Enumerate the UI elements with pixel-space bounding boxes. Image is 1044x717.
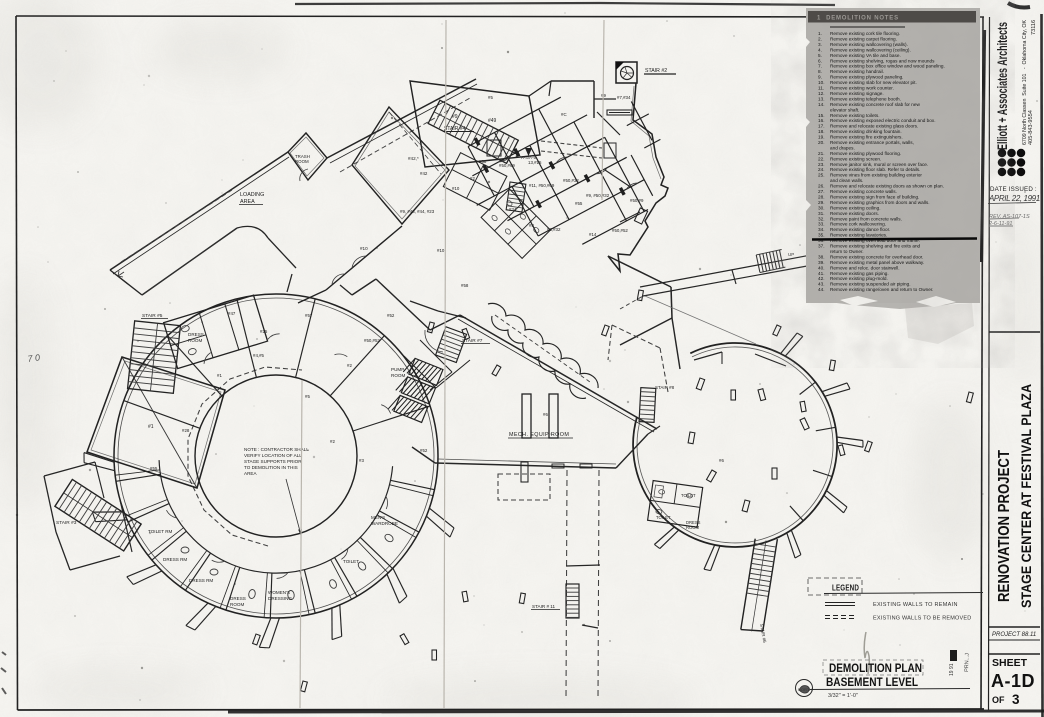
svg-text:Remove existing cork tile floo: Remove existing cork tile flooring.	[830, 31, 900, 36]
svg-text:40.: 40.	[818, 265, 825, 270]
svg-text:3/32" = 1'-0": 3/32" = 1'-0"	[828, 693, 858, 699]
svg-text:#38: #38	[479, 159, 487, 164]
svg-text:21.: 21.	[818, 151, 825, 156]
svg-text:#2: #2	[347, 363, 352, 368]
svg-text:34.: 34.	[818, 227, 825, 232]
svg-text:DRESS RM: DRESS RM	[163, 557, 187, 562]
svg-text:Remove paint from concrete wal: Remove paint from concrete walls.	[830, 216, 902, 221]
svg-text:Remove existing carpet floorin: Remove existing carpet flooring.	[830, 37, 897, 42]
svg-text:Remove existing handrail.: Remove existing handrail.	[830, 69, 884, 74]
svg-text:Remove existing graphics from: Remove existing graphics from doors and …	[830, 200, 930, 205]
svg-text:TOILET: TOILET	[656, 515, 671, 520]
svg-text:TOILET: TOILET	[681, 493, 696, 498]
svg-text:APRIL 22, 1991: APRIL 22, 1991	[988, 194, 1040, 203]
svg-text:#5: #5	[305, 394, 310, 399]
svg-text:#55: #55	[150, 466, 158, 471]
svg-text:NOTE : CONTRACTOR SHALL: NOTE : CONTRACTOR SHALL	[244, 447, 309, 452]
svg-text:PROJECT 88.11: PROJECT 88.11	[992, 632, 1036, 638]
svg-text:32.: 32.	[818, 216, 825, 221]
svg-text:1.: 1.	[818, 31, 822, 36]
svg-text:43.: 43.	[818, 282, 825, 287]
svg-text:DATE ISSUED :: DATE ISSUED :	[990, 186, 1037, 193]
svg-text:18.: 18.	[818, 129, 825, 134]
svg-text:Elliott + Associates Architect: Elliott + Associates Architects	[995, 22, 1010, 150]
svg-text:Remove existing range/oven and: Remove existing range/oven and return to…	[830, 287, 933, 292]
svg-text:38.: 38.	[818, 254, 825, 259]
svg-text:Remove existing dance floor.: Remove existing dance floor.	[830, 227, 890, 232]
svg-text:33.: 33.	[818, 222, 825, 227]
svg-text:Remove existing concrete for o: Remove existing concrete for overhead do…	[830, 254, 923, 259]
svg-text:Remove existing doors.: Remove existing doors.	[830, 211, 879, 216]
svg-text:13.: 13.	[818, 96, 825, 101]
svg-text:Remove cork wallcovering.: Remove cork wallcovering.	[830, 222, 886, 227]
svg-text:Remove existing slab for new e: Remove existing slab for new elevator pi…	[830, 80, 917, 85]
svg-text:and clean walls.: and clean walls.	[830, 178, 863, 183]
svg-text:20.: 20.	[818, 140, 825, 145]
svg-text:DEMOLITION PLAN: DEMOLITION PLAN	[829, 663, 922, 675]
svg-text:REV. AS-107-1S: REV. AS-107-1S	[989, 214, 1030, 220]
svg-text:#2: #2	[330, 439, 335, 444]
svg-text:AREA: AREA	[244, 471, 257, 476]
svg-text:OF: OF	[992, 695, 1005, 705]
svg-text:Remove existing gas piping.: Remove existing gas piping.	[830, 271, 889, 276]
svg-text:2-6-11-91: 2-6-11-91	[988, 221, 1012, 227]
svg-text:7 0: 7 0	[27, 352, 41, 364]
svg-text:TOILET RM: TOILET RM	[148, 529, 173, 534]
svg-text:2.: 2.	[818, 37, 822, 42]
svg-text:#58: #58	[461, 283, 469, 288]
svg-text:Remove existing screen.: Remove existing screen.	[830, 156, 881, 161]
svg-text:Remove existing floor slab. R: Remove existing floor slab. Refer to det…	[830, 167, 920, 172]
svg-text:MECH. EQUIP ROOM: MECH. EQUIP ROOM	[509, 432, 569, 438]
svg-text:Remove existing ceiling.: Remove existing ceiling.	[830, 205, 881, 210]
svg-text:30.: 30.	[818, 205, 825, 210]
svg-text:11.: 11.	[818, 86, 824, 91]
svg-text:#3: #3	[359, 458, 364, 463]
svg-text:#10: #10	[360, 246, 368, 251]
svg-text:WARDROBE: WARDROBE	[371, 521, 398, 526]
svg-text:#52: #52	[420, 448, 428, 453]
svg-text:31.: 31.	[818, 211, 825, 216]
svg-text:Remove vines from existing bui: Remove vines from existing building exte…	[830, 173, 922, 178]
svg-text:1 DEMOLITION NOTES: 1 DEMOLITION NOTES	[817, 16, 899, 22]
svg-text:SHEET: SHEET	[992, 657, 1028, 669]
svg-text:#10: #10	[452, 186, 460, 191]
svg-text:35.: 35.	[818, 233, 825, 238]
svg-text:#50,#52: #50,#52	[364, 338, 380, 343]
svg-text:Remove existing concrete walls: Remove existing concrete walls.	[830, 189, 897, 194]
svg-text:Remove janitor sink, mural or: Remove janitor sink, mural or screen ove…	[830, 162, 928, 167]
svg-text:39.: 39.	[818, 260, 825, 265]
svg-text:UP: UP	[788, 252, 794, 257]
svg-text:ROOM: ROOM	[295, 159, 309, 164]
svg-text:14.: 14.	[818, 102, 825, 107]
svg-text:#6: #6	[719, 458, 724, 463]
svg-text:4.: 4.	[818, 47, 822, 52]
svg-text:12.: 12.	[818, 91, 825, 96]
svg-text:MEN'S: MEN'S	[371, 515, 385, 520]
svg-text:return to Owner.: return to Owner.	[830, 249, 864, 254]
svg-text:EXISTING WALLS TO BE REMOVED: EXISTING WALLS TO BE REMOVED	[873, 616, 971, 622]
svg-text:#9, #43, #44, #23: #9, #43, #44, #23	[400, 209, 435, 214]
svg-text:STAIR #2: STAIR #2	[645, 68, 667, 74]
svg-text:19.: 19.	[818, 135, 825, 140]
svg-text:DRESS RM: DRESS RM	[189, 578, 213, 583]
svg-text:9.: 9.	[818, 75, 822, 80]
svg-text:#5: #5	[488, 95, 493, 100]
svg-text:5.: 5.	[818, 53, 822, 58]
svg-text:8.: 8.	[818, 69, 822, 74]
svg-text:#C: #C	[561, 112, 567, 117]
svg-text:VERIFY LOCATION OF ALL: VERIFY LOCATION OF ALL	[244, 453, 302, 458]
svg-text:STAIR #8: STAIR #8	[655, 385, 675, 390]
svg-text:Remove existing work counter.: Remove existing work counter.	[830, 86, 894, 91]
svg-text:Remove and reloc. door stairwe: Remove and reloc. door stairwell.	[830, 265, 900, 270]
svg-text:PUMP: PUMP	[391, 367, 404, 372]
svg-text:ROOM: ROOM	[188, 338, 202, 343]
svg-text:22.: 22.	[818, 156, 825, 161]
svg-text:#4,#5: #4,#5	[253, 353, 265, 358]
svg-text:16.: 16.	[818, 118, 825, 123]
svg-text:23.: 23.	[818, 162, 825, 167]
svg-text:Remove existing plywood floori: Remove existing plywood flooring.	[830, 151, 901, 156]
svg-text:STAGE CENTER AT FESTIVAL PLAZA: STAGE CENTER AT FESTIVAL PLAZA	[1018, 384, 1034, 608]
svg-text:6.: 6.	[818, 58, 822, 63]
svg-text:26.: 26.	[818, 184, 825, 189]
svg-text:ROOM: ROOM	[391, 373, 405, 378]
svg-text:Remove existing shelving and f: Remove existing shelving and fire exits …	[830, 244, 921, 249]
svg-text:#10: #10	[437, 248, 445, 253]
svg-text:ROOM: ROOM	[686, 525, 700, 530]
svg-text:TOILET: TOILET	[343, 559, 359, 564]
svg-text:Remove existing plug-mold.: Remove existing plug-mold.	[830, 276, 888, 281]
svg-text:#57: #57	[305, 313, 313, 318]
svg-text:Remove existing concrete roof: Remove existing concrete roof slab for n…	[830, 102, 921, 107]
svg-text:Remove existing metal panel ab: Remove existing metal panel above walkwa…	[830, 260, 924, 265]
svg-text:41.: 41.	[818, 271, 825, 276]
svg-text:Remove existing signage.: Remove existing signage.	[830, 91, 884, 96]
svg-text:Remove existing wallcovering (: Remove existing wallcovering (walls).	[830, 42, 908, 47]
svg-text:73116: 73116	[1031, 20, 1037, 35]
svg-text:42.: 42.	[818, 276, 825, 281]
svg-text:BASEMENT LEVEL: BASEMENT LEVEL	[826, 677, 918, 689]
svg-text:LEGEND: LEGEND	[832, 584, 859, 593]
svg-text:Remove existing telephone boot: Remove existing telephone booth.	[830, 96, 901, 101]
svg-text:#28: #28	[182, 428, 190, 433]
svg-text:17.: 17.	[818, 124, 825, 129]
svg-text:#55: #55	[575, 201, 583, 206]
svg-text:PRN...J: PRN...J	[964, 653, 971, 672]
svg-text:27.: 27.	[818, 189, 825, 194]
svg-text:#7,#34: #7,#34	[617, 95, 631, 100]
svg-text:#49: #49	[488, 118, 497, 124]
svg-text:TO DEMOLITION IN THIS: TO DEMOLITION IN THIS	[244, 465, 298, 470]
svg-text:#52: #52	[387, 313, 395, 318]
svg-text:Remove existing exposed electr: Remove existing exposed electric conduit…	[830, 118, 936, 123]
svg-text:#2: #2	[470, 176, 475, 181]
svg-text:STAGE SUPPORTS PRIOR: STAGE SUPPORTS PRIOR	[244, 459, 302, 464]
svg-text:DRESS: DRESS	[230, 596, 246, 601]
svg-text:Remove existing fire extinguis: Remove existing fire extinguishers.	[830, 135, 903, 140]
svg-text:#6: #6	[543, 412, 548, 417]
svg-text:Remove existing entrance porta: Remove existing entrance portals, walls,	[830, 140, 914, 145]
svg-text:Remove existing toilets.: Remove existing toilets.	[830, 113, 880, 118]
svg-text:Remove existing drinking fount: Remove existing drinking fountain.	[830, 129, 902, 134]
svg-text:elevator shaft.: elevator shaft.	[830, 107, 859, 112]
svg-text:10.: 10.	[818, 80, 825, 85]
svg-text:37.: 37.	[818, 244, 825, 249]
svg-text:#42: #42	[420, 171, 428, 176]
svg-text:Remove existing suspended air: Remove existing suspended air piping.	[830, 282, 911, 287]
svg-text:#34: #34	[509, 207, 517, 212]
svg-text:3.: 3.	[818, 42, 822, 47]
svg-text:A-1D: A-1D	[991, 671, 1035, 691]
svg-text:7.: 7.	[818, 64, 822, 69]
svg-text:WOMEN'S: WOMEN'S	[268, 590, 290, 595]
svg-text:Remove existing wallcovering (: Remove existing wallcovering (ceiling).	[830, 47, 911, 52]
svg-text:3: 3	[1012, 692, 1020, 707]
svg-text:and drapes.: and drapes.	[830, 146, 855, 151]
svg-text:#42,*: #42,*	[408, 156, 419, 161]
svg-text:Remove existing lavatories.: Remove existing lavatories.	[830, 233, 887, 238]
svg-text:Remove existing shelving, roga: Remove existing shelving, rogas and now …	[830, 58, 935, 63]
svg-text:15.: 15.	[818, 113, 825, 118]
svg-text:Remove and relocate existing g: Remove and relocate existing glass doors…	[830, 124, 918, 129]
svg-text:Remove and relocate existing d: Remove and relocate existing doors as sh…	[830, 184, 944, 189]
svg-text:#25: #25	[260, 329, 268, 334]
svg-text:#47: #47	[228, 311, 236, 316]
svg-text:STAIR # 11: STAIR # 11	[532, 604, 556, 609]
svg-text:19 91: 19 91	[949, 663, 955, 676]
svg-text:Remove existing box office win: Remove existing box office window and wo…	[830, 64, 945, 69]
svg-text:#1: #1	[148, 424, 154, 430]
svg-text:EXISTING WALLS TO REMAIN: EXISTING WALLS TO REMAIN	[873, 602, 958, 608]
svg-text:44.: 44.	[818, 287, 825, 292]
svg-text:Remove existing VA tile and ba: Remove existing VA tile and base.	[830, 53, 901, 58]
svg-text:NORTH: NORTH	[798, 687, 812, 692]
svg-text:Remove existing sign from face: Remove existing sign from face of buildi…	[830, 195, 919, 200]
svg-text:STAIR #3: STAIR #3	[56, 520, 77, 526]
svg-text:DRESSING: DRESSING	[268, 596, 292, 601]
svg-text:28.: 28.	[818, 195, 825, 200]
svg-text:405-843-9554: 405-843-9554	[1028, 110, 1034, 145]
svg-text:25.: 25.	[818, 173, 825, 178]
svg-text:#9: #9	[452, 114, 458, 120]
svg-text:Remove existing plywood paneli: Remove existing plywood paneling.	[830, 75, 903, 80]
svg-text:24.: 24.	[818, 167, 825, 172]
svg-text:ROOM: ROOM	[230, 602, 244, 607]
svg-text:29.: 29.	[818, 200, 825, 205]
svg-text:#50,#52: #50,#52	[612, 228, 628, 233]
svg-text:#14: #14	[589, 232, 597, 237]
svg-text:#1: #1	[217, 373, 222, 378]
svg-text:LOADING: LOADING	[240, 192, 264, 198]
svg-text:#9, #50,#32: #9, #50,#32	[586, 193, 610, 198]
svg-text:RENOVATION PROJECT: RENOVATION PROJECT	[996, 450, 1013, 602]
